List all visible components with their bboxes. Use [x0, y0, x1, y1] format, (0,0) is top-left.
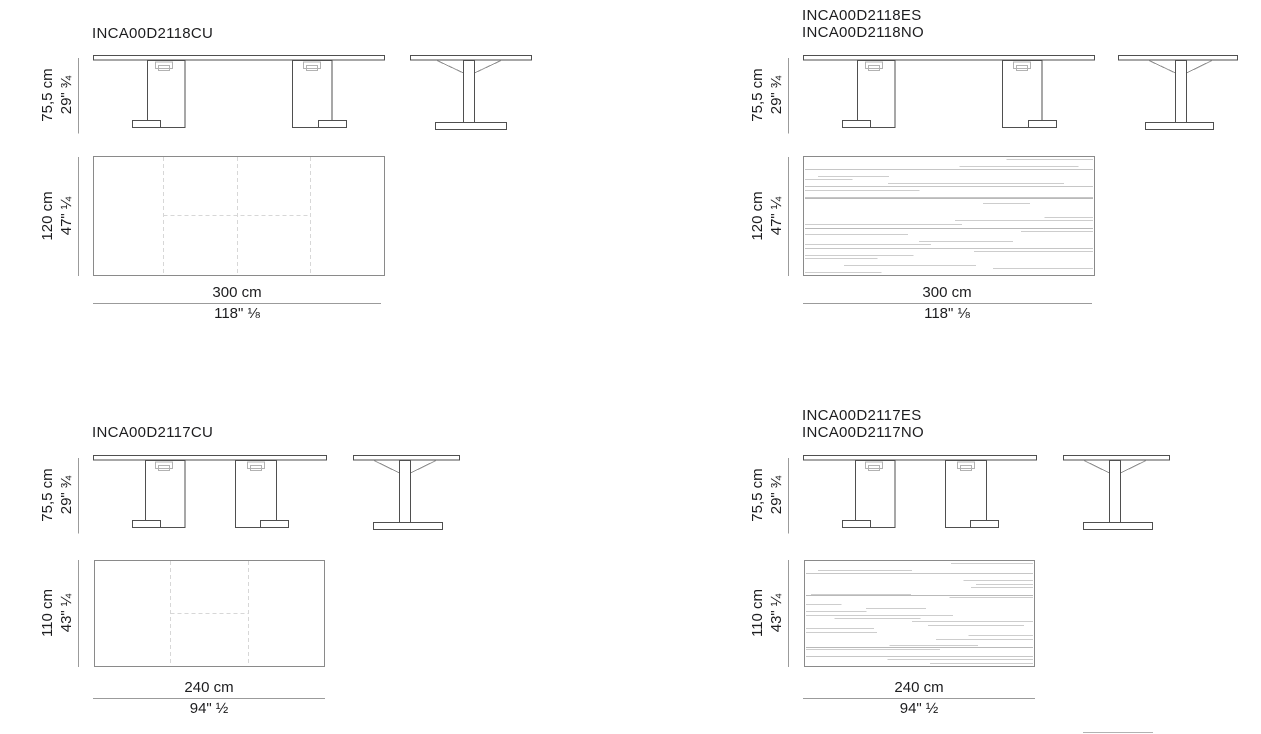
length-label-cm: 240 cm	[819, 679, 1019, 696]
length-label-in: 94"½	[819, 700, 1019, 717]
top-view	[805, 561, 1035, 667]
depth-label-cm: 110 cm	[749, 568, 765, 658]
product-panel-2117es-no: INCA00D2117ES INCA00D2117NO	[0, 0, 1261, 734]
height-label-in: 29"¾	[768, 450, 784, 540]
depth-label-in: 43"¼	[768, 568, 784, 658]
front-view	[804, 456, 1037, 528]
height-label-cm: 75,5 cm	[749, 450, 765, 540]
catalog-dimension-sheet: { "page": { "background": "#ffffff", "li…	[0, 0, 1261, 734]
side-view	[1064, 456, 1170, 530]
